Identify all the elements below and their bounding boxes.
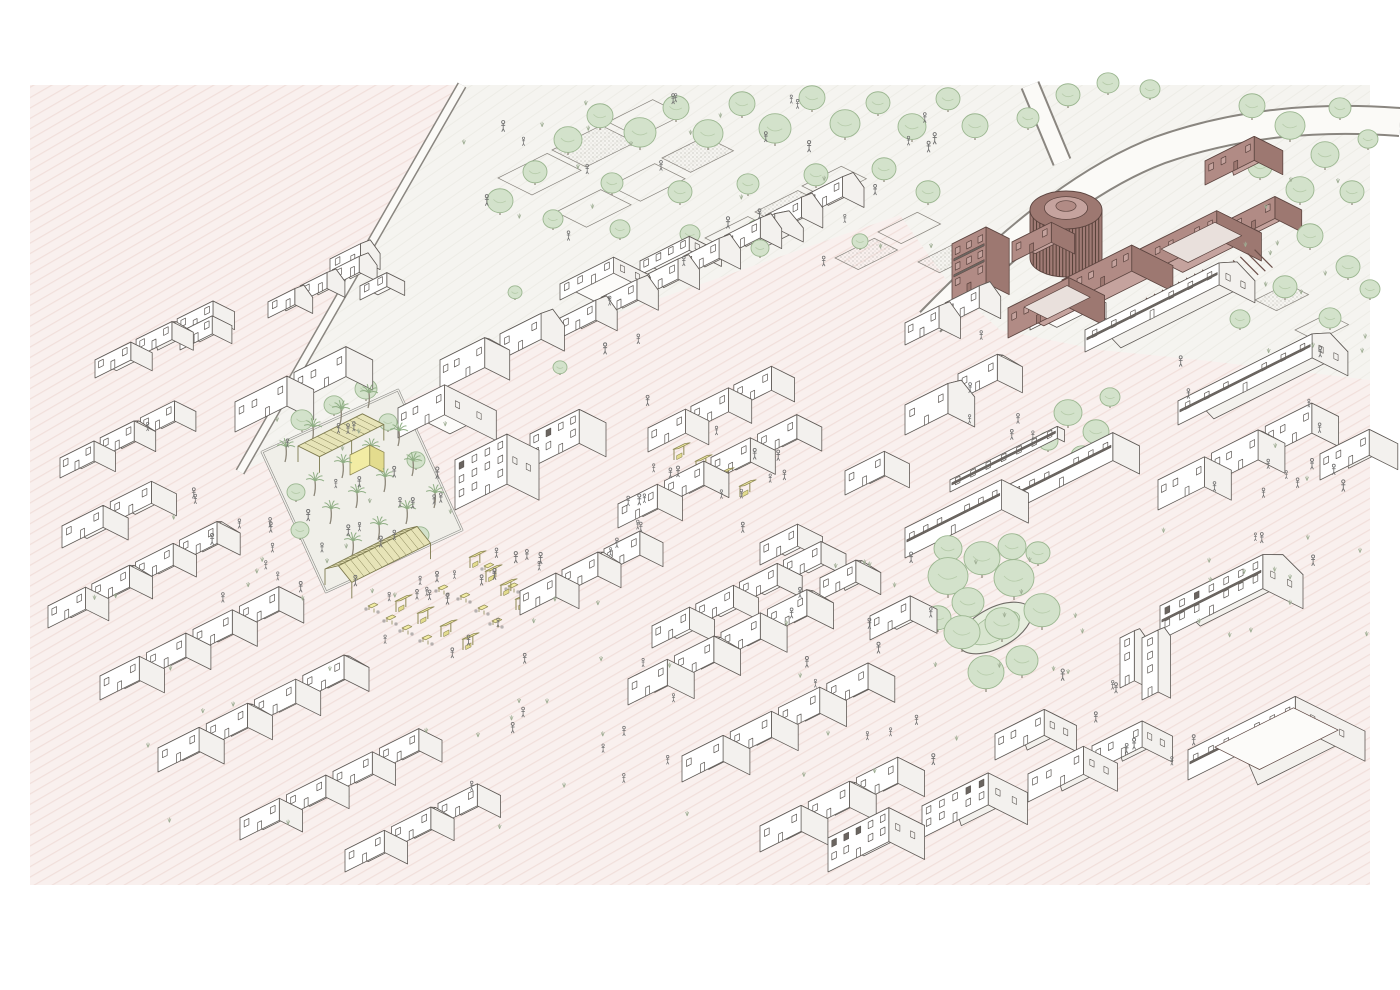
masterplan-illustration [0, 0, 1400, 990]
town-house [1120, 629, 1145, 688]
axonometric-town-drawing [0, 0, 1400, 990]
town-house [1142, 628, 1171, 701]
